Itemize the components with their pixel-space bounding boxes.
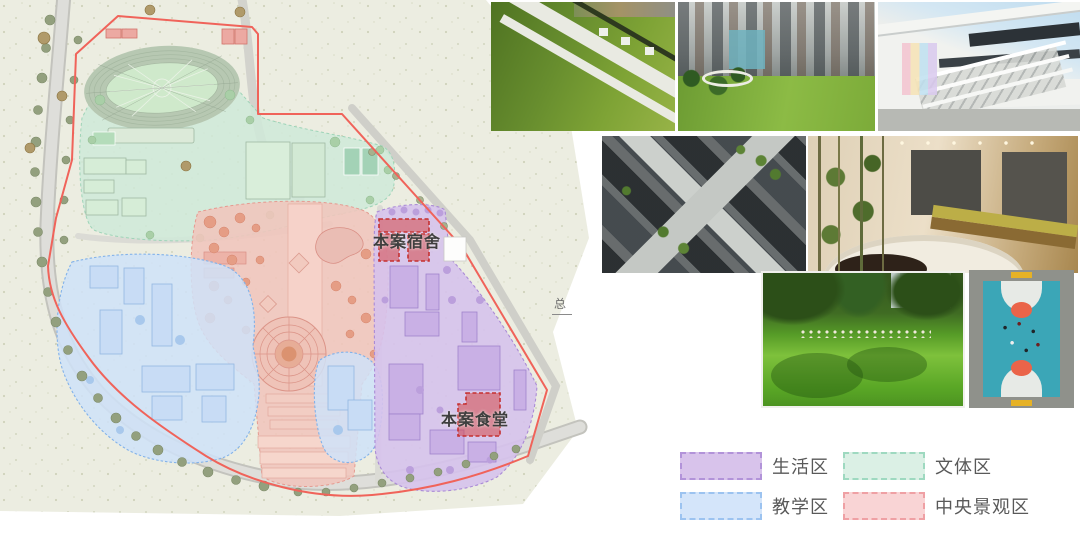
masterplan-slide: 本案宿舍 本案食堂 总 [0, 0, 1080, 533]
legend-item-sports: 文体区 [843, 452, 992, 480]
legend-swatch-living [680, 452, 762, 480]
photo-deco [878, 109, 1080, 131]
photo-deco [998, 320, 1045, 357]
photo-deco [808, 136, 900, 273]
legend-swatch-central-landscape [843, 492, 925, 520]
photo-deco [602, 136, 806, 273]
legend-label-sports: 文体区 [935, 453, 992, 479]
photo-basketball-court [969, 270, 1074, 408]
photo-green-roof-landscape [491, 2, 675, 131]
photo-city-park [678, 2, 875, 131]
canteen-label: 本案食堂 [441, 406, 509, 430]
photo-deco [911, 150, 981, 216]
photo-deco [1011, 302, 1033, 318]
photo-courtyard-aerial [602, 136, 806, 273]
legend-label-living: 生活区 [772, 453, 829, 479]
photo-interior-commons [808, 136, 1078, 273]
photo-deco [847, 347, 927, 382]
legend-label-central-landscape: 中央景观区 [935, 493, 1030, 519]
photo-deco [1002, 152, 1067, 223]
photo-deco [799, 329, 931, 338]
photo-deco [1011, 400, 1032, 406]
legend-item-living: 生活区 [680, 452, 829, 480]
legend-label-teaching: 教学区 [772, 493, 829, 519]
legend-swatch-teaching [680, 492, 762, 520]
photo-deco [889, 141, 1051, 145]
legend-swatch-sports [843, 452, 925, 480]
photo-deco [1011, 272, 1032, 278]
photo-deco [983, 281, 1061, 397]
legend-item-central-landscape: 中央景观区 [843, 492, 1030, 520]
photo-park-lawn [761, 271, 965, 408]
dormitory-label: 本案宿舍 [373, 228, 441, 252]
grandstand-building [108, 128, 194, 143]
photo-deco [599, 28, 608, 36]
photo-deco [702, 70, 753, 87]
callout-box [444, 237, 466, 261]
photo-deco [902, 43, 936, 95]
photo-school-building [878, 2, 1080, 131]
legend-item-teaching: 教学区 [680, 492, 829, 520]
corner-note: 总 [552, 295, 572, 315]
